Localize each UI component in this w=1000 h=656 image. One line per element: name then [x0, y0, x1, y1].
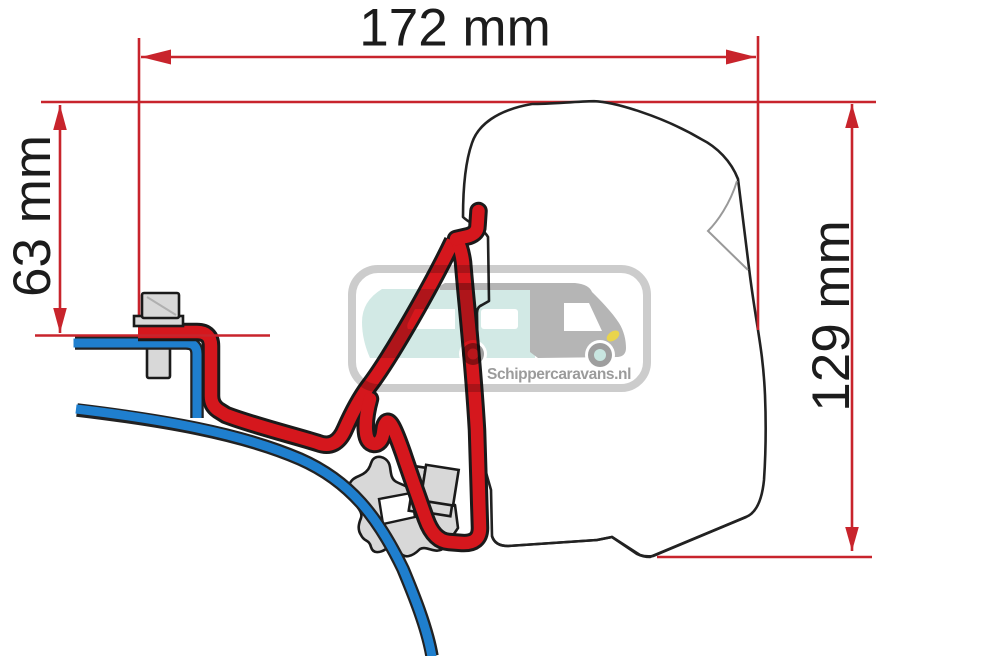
svg-text:Schippercaravans.nl: Schippercaravans.nl [487, 366, 631, 383]
svg-text:172 mm: 172 mm [359, 0, 550, 58]
svg-text:129 mm: 129 mm [802, 220, 861, 411]
svg-text:63 mm: 63 mm [3, 135, 62, 297]
